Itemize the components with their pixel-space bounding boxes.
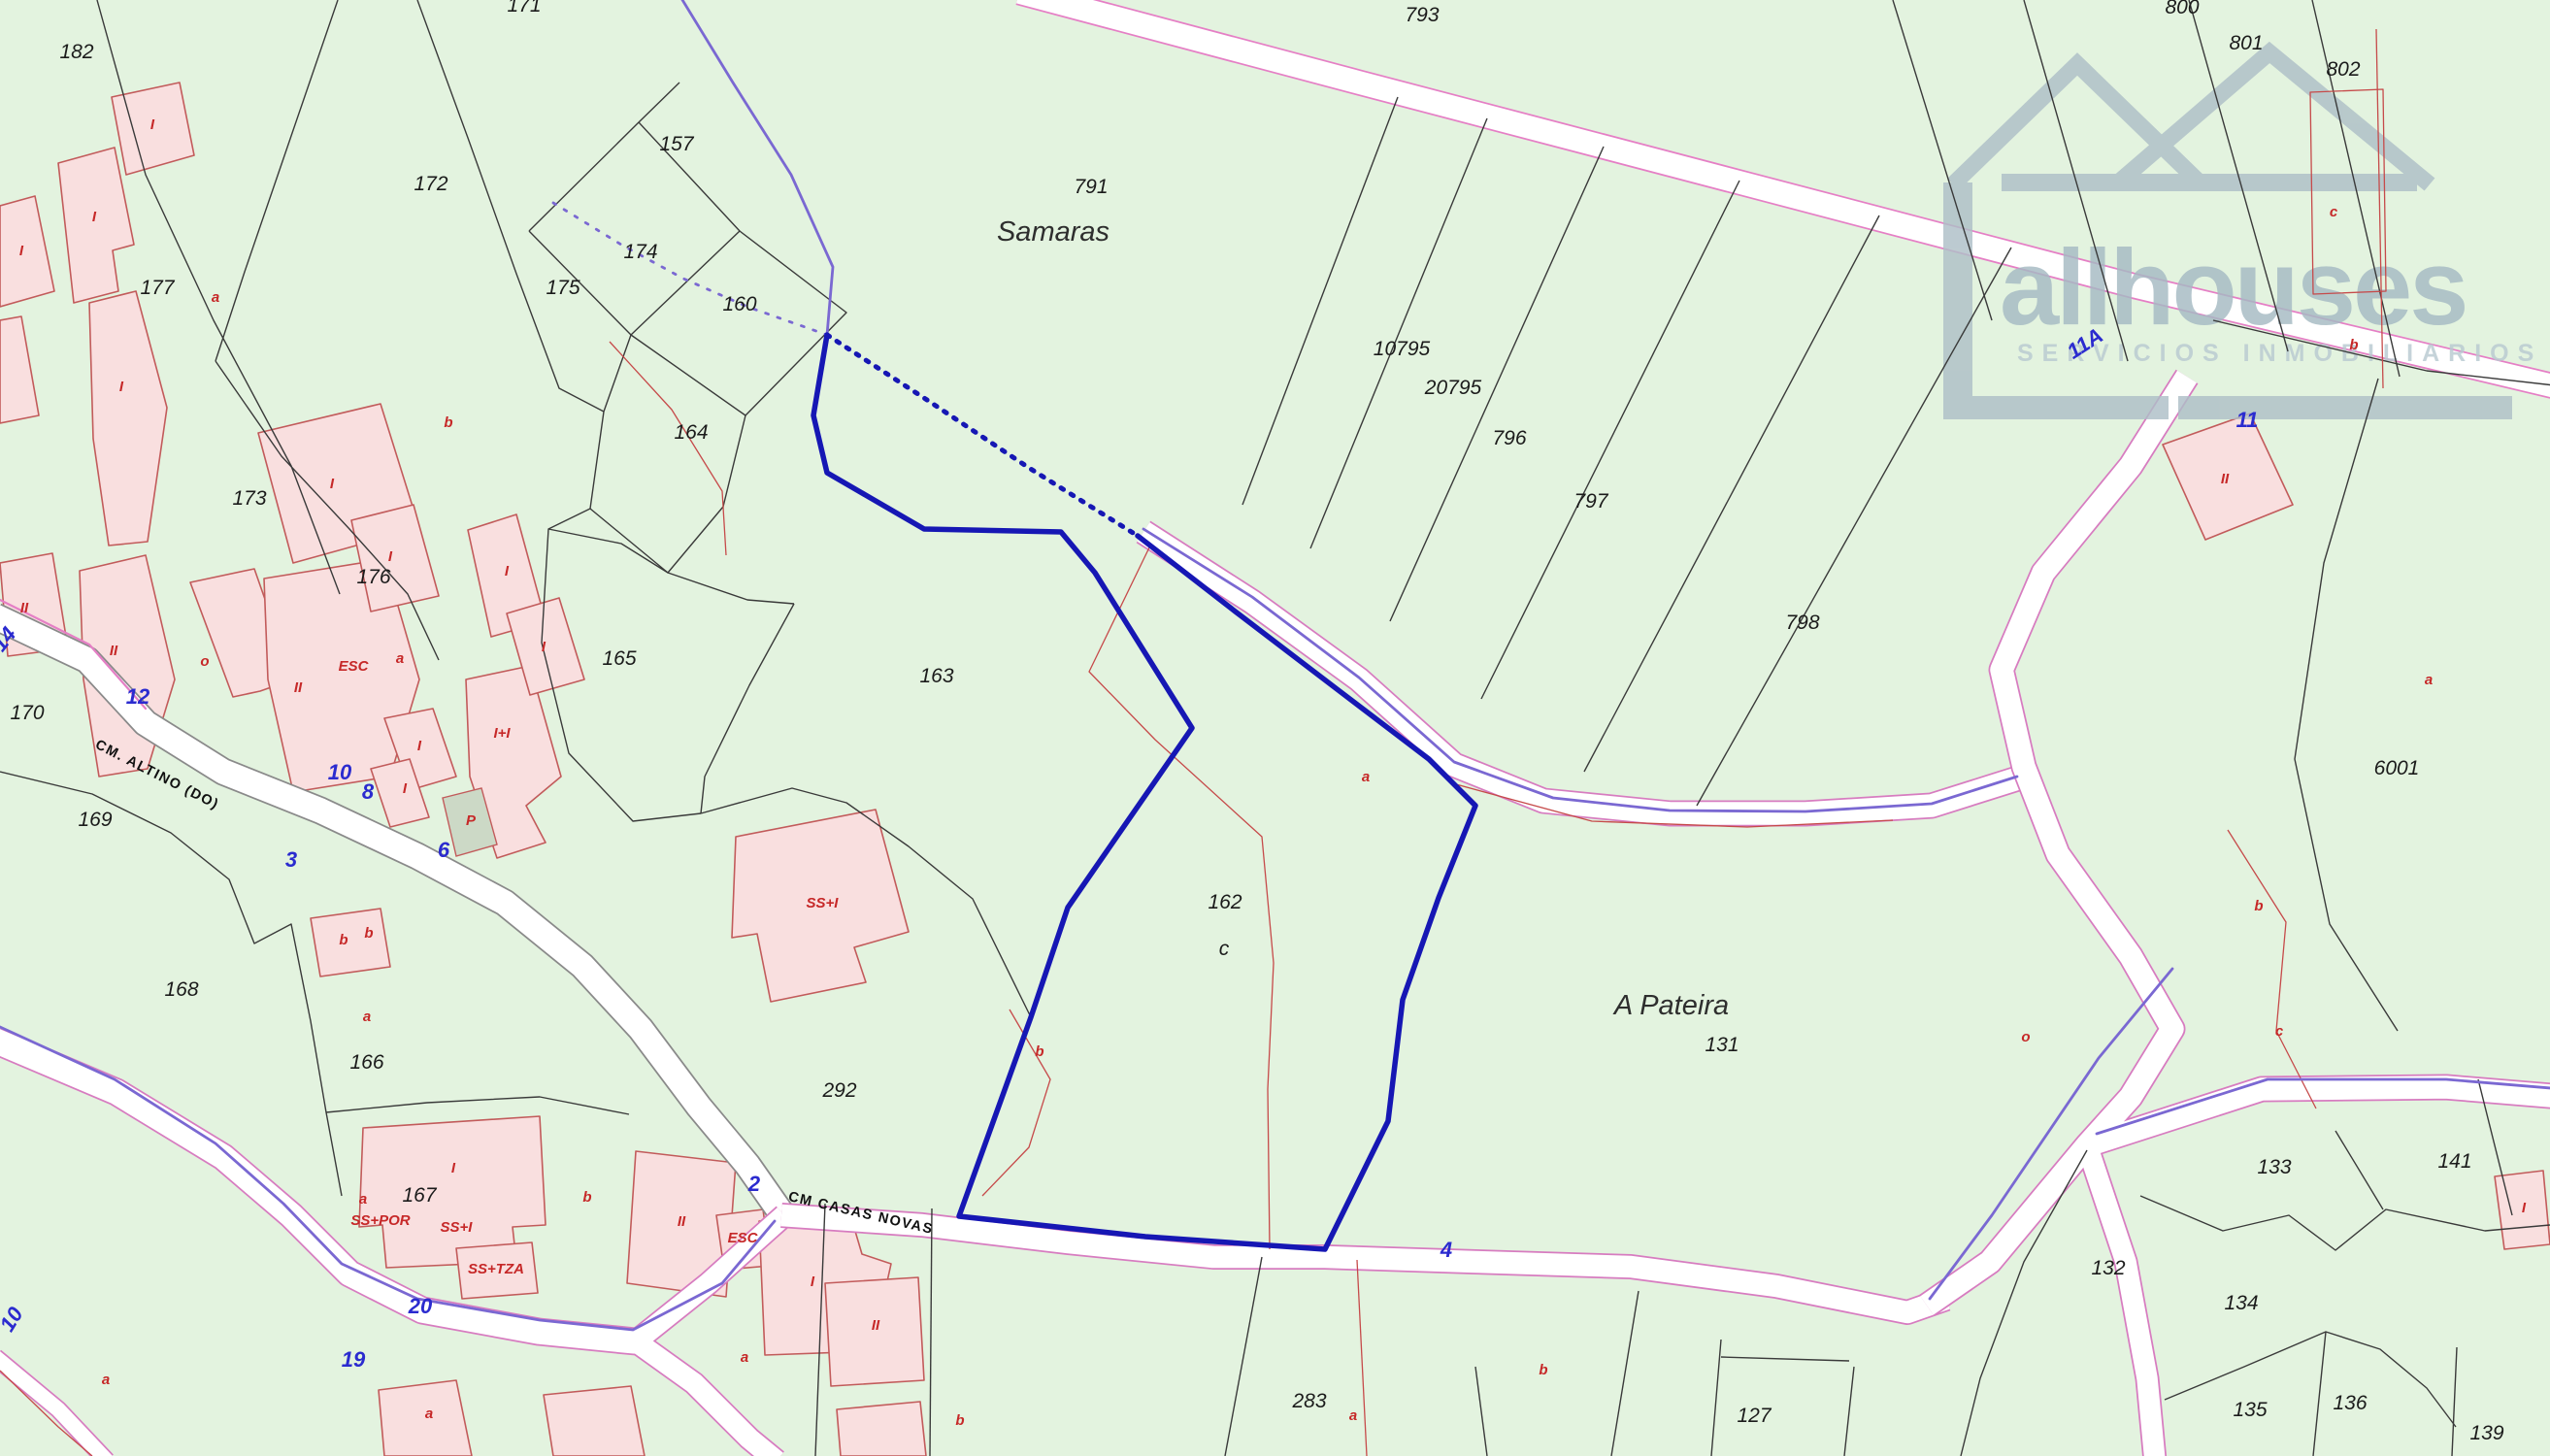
road-numbers-label: 2 xyxy=(747,1172,761,1196)
parcel-numbers-label: 283 xyxy=(1291,1390,1326,1412)
road-numbers-label: 19 xyxy=(342,1347,366,1372)
parcel-numbers-label: 139 xyxy=(2469,1422,2503,1444)
building-labels-label: P xyxy=(466,812,477,829)
parcel-numbers-label: 175 xyxy=(546,277,580,299)
parcel-numbers-label: 134 xyxy=(2224,1292,2258,1314)
subparcel-letters-label: a xyxy=(425,1406,433,1422)
road-numbers-label: 10 xyxy=(328,760,352,784)
parcel-numbers-label: 136 xyxy=(2333,1392,2367,1414)
road-numbers-label: 12 xyxy=(126,684,150,709)
subparcel-letters-label: b xyxy=(1035,1043,1043,1060)
building-labels-label: II xyxy=(110,643,118,659)
subparcel-letters-label: b xyxy=(1539,1362,1547,1378)
subparcel-letters-label: c xyxy=(2275,1023,2284,1040)
subparcel-letters-label: o xyxy=(200,653,209,670)
parcel-numbers-label: 292 xyxy=(821,1079,856,1102)
parcel-numbers-label: 796 xyxy=(1492,427,1526,449)
parcel-numbers-label: 167 xyxy=(402,1184,437,1207)
parcel-numbers-label: 131 xyxy=(1705,1034,1739,1056)
subparcel-letters-label: a xyxy=(741,1349,748,1366)
road-numbers-label: 3 xyxy=(285,847,297,872)
parcel-numbers-label: 127 xyxy=(1737,1405,1772,1427)
parcel-numbers-label: c xyxy=(1219,938,1230,960)
road-numbers-label: 6 xyxy=(438,838,450,862)
logo-brand-text: allhouses xyxy=(2000,228,2466,347)
building-labels-label: II xyxy=(294,679,303,696)
place-names-label: A Pateira xyxy=(1612,990,1729,1021)
subparcel-letters-label: b xyxy=(364,925,373,942)
map-canvas: allhouses SERVICIOS INMOBILIARIOS xyxy=(0,0,2550,1456)
parcel-numbers-label: 20795 xyxy=(1424,377,1482,399)
building-labels-label: II xyxy=(678,1213,686,1230)
subparcel-letters-label: c xyxy=(2330,204,2338,220)
subparcel-letters-label: a xyxy=(1362,769,1370,785)
parcel-numbers-label: 160 xyxy=(722,293,756,315)
parcel-numbers-label: 132 xyxy=(2091,1257,2125,1279)
road-numbers-label: 11 xyxy=(2236,408,2259,432)
parcel-numbers-label: 174 xyxy=(623,241,657,263)
subparcel-letters-label: b xyxy=(582,1189,591,1206)
parcel-numbers-label: 168 xyxy=(164,978,198,1001)
subparcel-letters-label: b xyxy=(2349,337,2358,353)
subparcel-letters-label: a xyxy=(102,1372,110,1388)
parcel-numbers-label: 157 xyxy=(659,133,694,155)
parcel-numbers-label: 141 xyxy=(2437,1150,2471,1173)
road-numbers-label: 4 xyxy=(1440,1238,1452,1262)
subparcel-letters-label: b xyxy=(339,932,348,948)
parcel-numbers-label: 176 xyxy=(356,566,390,588)
subparcel-letters-label: a xyxy=(396,650,404,667)
subparcel-letters-label: a xyxy=(2425,672,2433,688)
road-numbers-label: 20 xyxy=(408,1294,433,1318)
subparcel-letters-label: b xyxy=(955,1412,964,1429)
cadastral-map: allhouses SERVICIOS INMOBILIARIOS xyxy=(0,0,2550,1456)
parcel-numbers-label: 164 xyxy=(674,421,708,444)
parcel-numbers-label: 135 xyxy=(2233,1399,2267,1421)
subparcel-letters-label: a xyxy=(363,1009,371,1025)
subparcel-letters-label: a xyxy=(1349,1407,1357,1424)
parcel-numbers-label: 791 xyxy=(1074,176,1108,198)
parcel-numbers-label: 798 xyxy=(1785,612,1819,634)
parcel-numbers-label: 163 xyxy=(919,665,953,687)
place-names-label: Samaras xyxy=(997,216,1109,248)
parcel-numbers-label: 166 xyxy=(349,1051,383,1074)
parcel-numbers-label: 177 xyxy=(140,277,175,299)
building-labels-label: II xyxy=(872,1317,880,1334)
building-labels-label: ESC xyxy=(339,658,370,675)
parcel-numbers-label: 800 xyxy=(2165,0,2199,18)
building-labels-label: SS+I xyxy=(807,895,840,911)
subparcel-letters-label: a xyxy=(359,1191,367,1208)
subparcel-letters-label: a xyxy=(212,289,219,306)
building-labels-label: SS+POR xyxy=(350,1212,410,1229)
subparcel-letters-label: o xyxy=(2021,1029,2030,1045)
parcel-numbers-label: 133 xyxy=(2257,1156,2291,1178)
subparcel-letters-label: b xyxy=(2254,898,2263,914)
building-labels-label: ESC xyxy=(728,1230,759,1246)
parcel-numbers-label: 801 xyxy=(2229,32,2263,54)
parcel-numbers-label: 170 xyxy=(10,702,44,724)
parcel-numbers-label: 165 xyxy=(602,647,636,670)
road-numbers-label: 8 xyxy=(362,779,375,804)
parcel-numbers-label: 162 xyxy=(1208,891,1242,913)
parcel-numbers-label: 793 xyxy=(1405,4,1439,26)
parcel-numbers-label: 169 xyxy=(78,809,112,831)
building-labels-label: II xyxy=(2221,471,2230,487)
building-labels-label: SS+TZA xyxy=(468,1261,524,1277)
parcel-numbers-label: 172 xyxy=(414,173,447,195)
parcel-numbers-label: 802 xyxy=(2326,58,2360,81)
parcel-numbers-label: 10795 xyxy=(1374,338,1431,360)
building-labels-label: SS+I xyxy=(441,1219,474,1236)
parcel-numbers-label: 182 xyxy=(59,41,93,63)
parcel-numbers-label: 171 xyxy=(507,0,541,17)
building-labels-label: I+I xyxy=(493,725,511,742)
parcel-numbers-label: 173 xyxy=(232,487,266,510)
building-labels-label: II xyxy=(20,600,29,616)
parcel-numbers-label: 797 xyxy=(1573,490,1608,513)
parcel-numbers-label: 6001 xyxy=(2374,757,2420,779)
subparcel-letters-label: b xyxy=(444,414,452,431)
